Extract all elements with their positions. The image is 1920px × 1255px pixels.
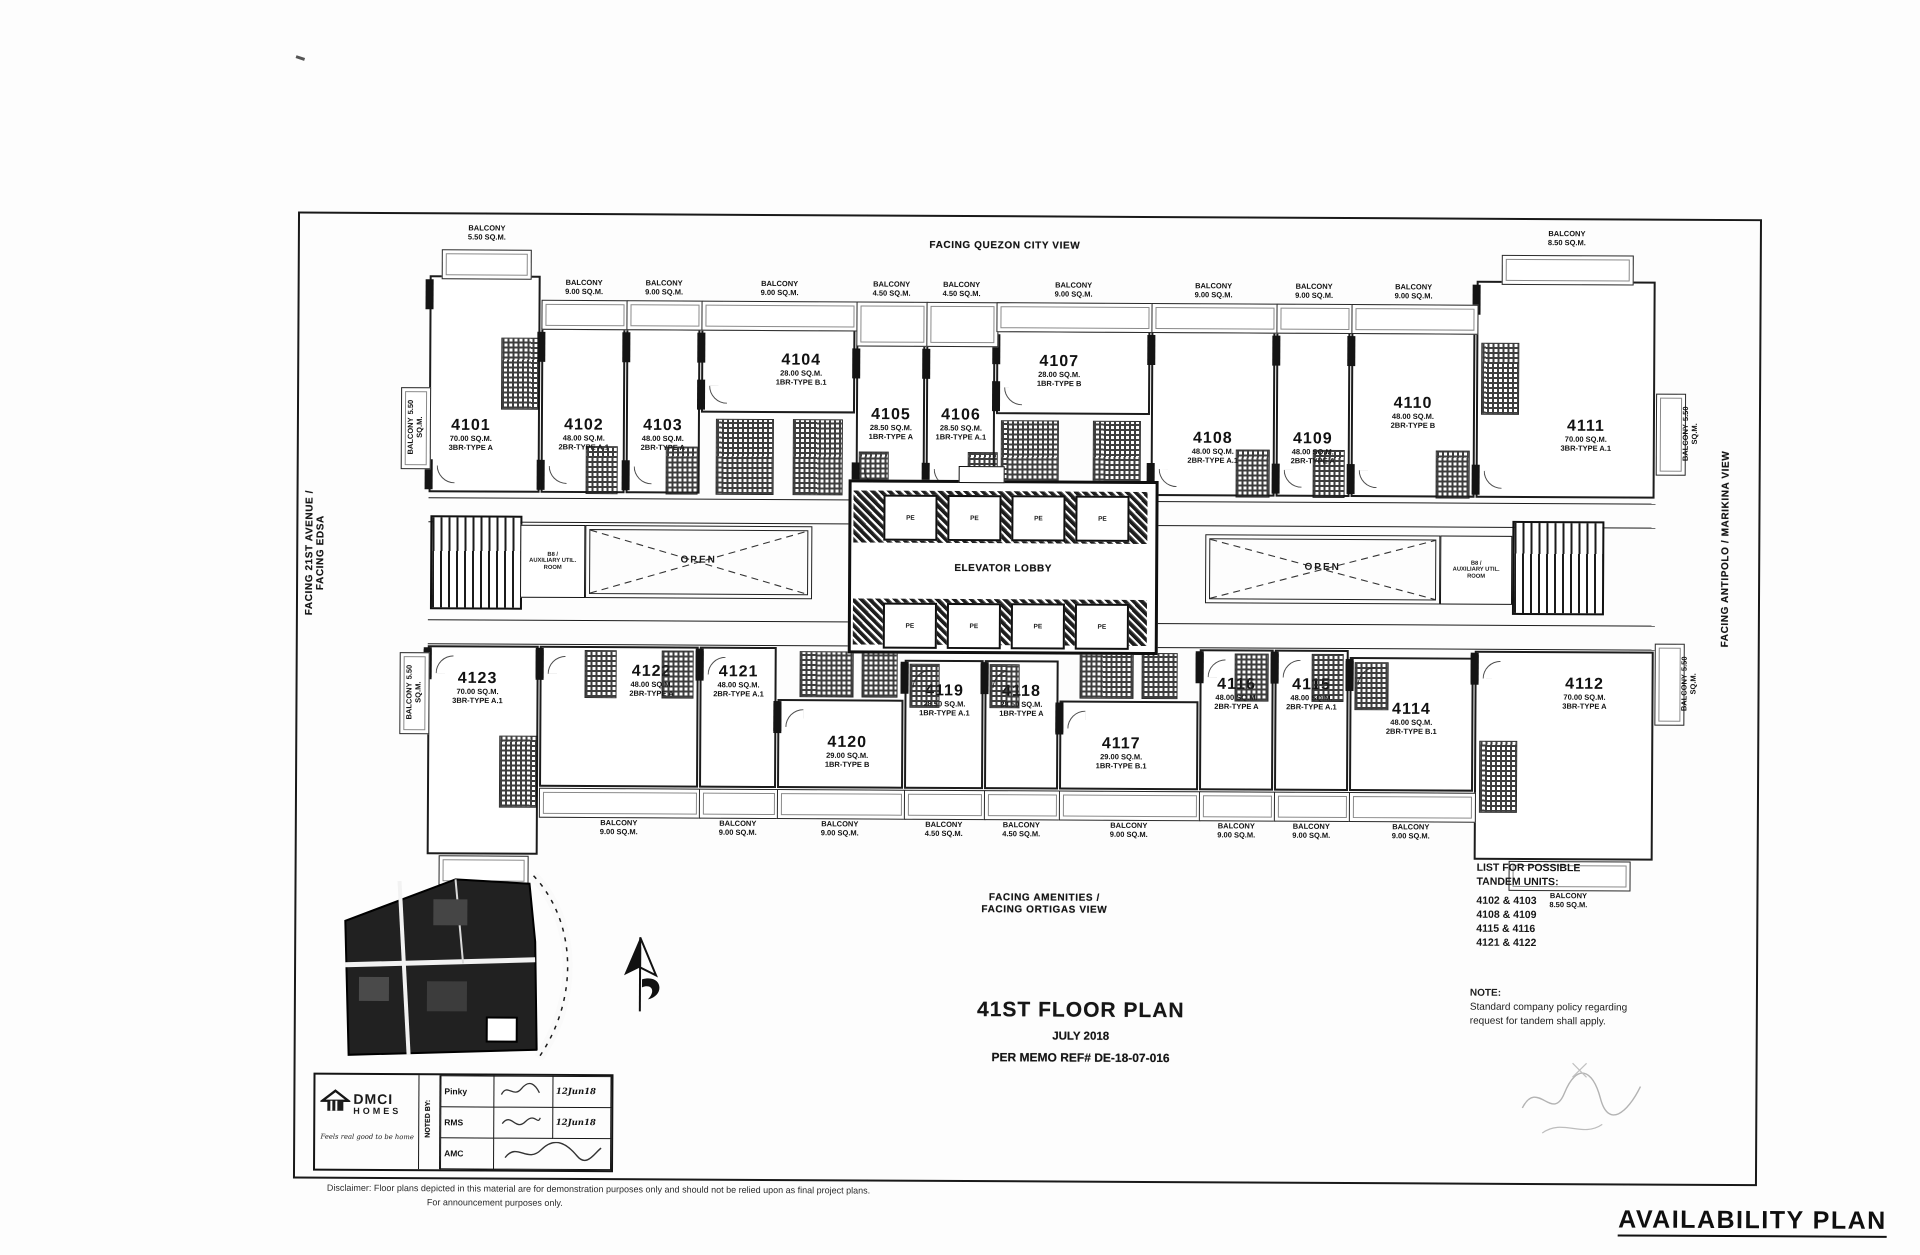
balcony-strip <box>1351 304 1478 335</box>
unit-4110-label: 411048.00 SQ.M.2BR-TYPE B <box>1358 395 1468 431</box>
unit-4120-number: 4120 <box>792 734 902 752</box>
wall-pier <box>992 381 1000 411</box>
wall-pier <box>696 649 704 679</box>
wall-pier <box>1347 336 1355 366</box>
unit-4107-label: 410728.00 SQ.M.1BR-TYPE B <box>1004 353 1114 389</box>
balcony-word: BALCONY <box>1392 822 1429 831</box>
plumbing-core <box>1481 343 1519 415</box>
note-block: NOTE: Standard company policy regarding … <box>1470 987 1680 1030</box>
open-area-left: OPEN <box>585 525 812 599</box>
title-strip: DMCI HOMES Feels real good to be home NO… <box>313 1073 614 1173</box>
balcony-label: BALCONY9.00 SQ.M. <box>1019 280 1129 299</box>
elevator-cab-label: PE <box>906 514 915 521</box>
unit-4110-number: 4110 <box>1358 395 1468 413</box>
balcony-word: BALCONY <box>1296 282 1333 291</box>
plumbing-core <box>1354 662 1388 710</box>
stairs-left <box>430 515 522 609</box>
plumbing-core <box>1436 450 1470 498</box>
tandem-pair: 4115 & 4116 <box>1476 922 1646 937</box>
balcony-word: BALCONY <box>406 417 415 454</box>
tandem-list: LIST FOR POSSIBLE TANDEM UNITS: 4102 & 4… <box>1476 861 1646 951</box>
balcony-label: BALCONY5.50 SQ.M. <box>1681 397 1699 471</box>
balcony-label: BALCONY9.00 SQ.M. <box>1356 822 1466 841</box>
brand-name-1: DMCI <box>353 1091 393 1107</box>
auxiliary-room-right: B8 /AUXILIARY UTIL.ROOM <box>1440 536 1512 605</box>
unit-4107-number: 4107 <box>1004 353 1114 371</box>
balcony-label: BALCONY9.00 SQ.M. <box>1159 281 1269 300</box>
wall-pier <box>1347 464 1355 494</box>
wall-pier <box>697 333 705 363</box>
balcony-word: BALCONY <box>468 223 505 232</box>
balcony-strip <box>1502 255 1634 286</box>
balcony-label: BALCONY4.50 SQ.M. <box>927 280 997 298</box>
unit-4123-label: 412370.00 SQ.M.3BR-TYPE A.1 <box>422 670 532 706</box>
balcony-label: BALCONY5.50 SQ.M. <box>1679 647 1697 721</box>
balcony-strip <box>442 249 532 279</box>
wall-pier <box>922 349 930 379</box>
balcony-label: BALCONY4.50 SQ.M. <box>904 820 984 838</box>
unit-4112-number: 4112 <box>1530 675 1640 693</box>
wall-pier <box>1272 336 1280 366</box>
brand-name-2: HOMES <box>353 1106 401 1116</box>
balcony-label: BALCONY9.00 SQ.M. <box>1274 822 1349 840</box>
noted-name: RMS <box>441 1107 494 1138</box>
key-plan-inset <box>337 869 600 1060</box>
plumbing-core <box>909 664 939 708</box>
balcony-area: 9.00 SQ.M. <box>600 827 638 836</box>
balcony-label: BALCONY4.50 SQ.M. <box>857 279 927 297</box>
balcony-word: BALCONY <box>925 820 962 829</box>
noted-by-strip: NOTED BY: <box>419 1075 440 1169</box>
elevator-cab-bottom-2: PE <box>947 603 1001 649</box>
unit-4114-type: 2BR-TYPE B.1 <box>1356 727 1466 737</box>
unit-4104-label: 410428.00 SQ.M.1BR-TYPE B.1 <box>746 351 856 387</box>
wall-pier <box>901 662 909 692</box>
balcony-word: BALCONY <box>821 819 858 828</box>
elevator-cab-label: PE <box>1097 623 1106 630</box>
facing-label-bottom-1: FACING AMENITIES / <box>939 892 1149 904</box>
unit-4111-label: 411170.00 SQ.M.3BR-TYPE A.1 <box>1531 417 1641 453</box>
plumbing-core <box>1479 741 1517 813</box>
unit-4103-number: 4103 <box>608 417 718 435</box>
balcony-strip <box>1151 303 1278 334</box>
balcony-area: 9.00 SQ.M. <box>1395 291 1433 300</box>
balcony-word: BALCONY <box>1293 822 1330 831</box>
signature-cell <box>494 1107 553 1138</box>
wall-pier <box>1472 465 1480 495</box>
balcony-strip <box>1199 791 1276 821</box>
unit-4117-label: 411729.00 SQ.M.1BR-TYPE B.1 <box>1066 735 1176 771</box>
balcony-word: BALCONY <box>1395 282 1432 291</box>
balcony-area: 9.00 SQ.M. <box>1292 831 1330 840</box>
wall-pier <box>1471 653 1479 683</box>
balcony-label: BALCONY4.50 SQ.M. <box>984 820 1059 838</box>
noted-by-table: Pinky 12Jun18 RMS 12Jun18 AMC <box>440 1075 611 1170</box>
note-line-2: request for tandem shall apply. <box>1470 1015 1680 1030</box>
balcony-area: 4.50 SQ.M. <box>925 829 963 838</box>
balcony-word: BALCONY <box>1110 821 1147 830</box>
elevator-cab-label: PE <box>970 623 979 630</box>
plumbing-core <box>793 419 843 495</box>
elevator-lobby-label: ELEVATOR LOBBY <box>903 563 1103 575</box>
balcony-strip <box>626 300 703 330</box>
unit-4103-label: 410348.00 SQ.M.2BR-TYPE A <box>608 417 718 453</box>
balcony-area: 9.00 SQ.M. <box>719 828 757 837</box>
wall-pier <box>1272 464 1280 494</box>
tandem-pair: 4108 & 4109 <box>1476 908 1646 923</box>
availability-plan-title: AVAILABILITY PLAN <box>1467 1205 1887 1236</box>
wall-pier <box>852 348 860 378</box>
elevator-cab-bottom-1: PE <box>883 603 937 649</box>
balcony-word: BALCONY <box>719 819 756 828</box>
balcony-word: BALCONY <box>1003 820 1040 829</box>
table-row: Pinky 12Jun18 <box>441 1076 611 1108</box>
balcony-label: BALCONY9.00 SQ.M. <box>542 278 627 296</box>
disclaimer-line-2: For announcement purposes only. <box>427 1197 827 1209</box>
plumbing-core <box>1236 449 1270 497</box>
balcony-label: BALCONY9.00 SQ.M. <box>627 278 702 296</box>
signature-cell <box>494 1076 553 1107</box>
balcony-label: BALCONY9.00 SQ.M. <box>725 279 835 298</box>
unit-4101-type: 3BR-TYPE A <box>416 443 526 453</box>
tandem-heading-1: LIST FOR POSSIBLE <box>1477 861 1647 876</box>
balcony-label: BALCONY9.00 SQ.M. <box>785 819 895 838</box>
lobby-top-box <box>959 466 1005 483</box>
plan-date: JULY 2018 <box>931 1030 1231 1044</box>
scan-artifact <box>296 55 305 61</box>
wall-pier <box>622 332 630 362</box>
unit-4121-type: 2BR-TYPE A.1 <box>683 689 793 699</box>
balcony-label: BALCONY9.00 SQ.M. <box>699 819 777 837</box>
noted-name: Pinky <box>441 1076 494 1107</box>
unit-4120-type: 1BR-TYPE B <box>792 760 902 770</box>
tandem-pair: 4121 & 4122 <box>1476 936 1646 951</box>
noted-date: 12Jun18 <box>552 1107 611 1138</box>
balcony-word: BALCONY <box>1218 821 1255 830</box>
brand-tagline: Feels real good to be home <box>319 1133 415 1142</box>
tandem-pair: 4102 & 4103 <box>1476 894 1646 909</box>
balcony-label: BALCONY9.00 SQ.M. <box>1277 282 1352 300</box>
elevator-cab-label: PE <box>1034 623 1043 630</box>
plumbing-core <box>861 651 897 697</box>
plumbing-core <box>1313 450 1345 498</box>
wall-pier <box>1055 703 1063 733</box>
balcony-area: 9.00 SQ.M. <box>1217 830 1255 839</box>
unit-4117-number: 4117 <box>1066 735 1176 753</box>
brand-logo-cell: DMCI HOMES Feels real good to be home <box>315 1075 420 1170</box>
unit-4106-type: 1BR-TYPE A.1 <box>906 432 1016 442</box>
plan-memo: PER MEMO REF# DE-18-07-016 <box>931 1050 1231 1066</box>
elevator-cab-bottom-3: PE <box>1011 603 1065 649</box>
open-area-right: OPEN <box>1205 534 1440 604</box>
facing-label-right: FACING ANTIPOLO / MARIKINA VIEW <box>1720 434 1735 664</box>
facing-label-top: FACING QUEZON CITY VIEW <box>880 240 1130 252</box>
plumbing-core <box>1079 653 1133 699</box>
table-row: AMC <box>441 1138 611 1170</box>
balcony-word: BALCONY <box>1195 281 1232 290</box>
tandem-heading-2: TANDEM UNITS: <box>1476 875 1646 890</box>
plumbing-core <box>989 664 1019 708</box>
unit-4120-label: 412029.00 SQ.M.1BR-TYPE B <box>792 734 902 770</box>
balcony-word: BALCONY <box>1055 280 1092 289</box>
wall-pier <box>981 662 989 692</box>
scanned-floor-plan-page: FACING QUEZON CITY VIEW FACING AMENITIES… <box>0 0 1920 1255</box>
elevator-cab-bottom-4: PE <box>1075 604 1129 650</box>
unit-4112-label: 411270.00 SQ.M.3BR-TYPE A <box>1529 675 1639 711</box>
wall-pier <box>1196 651 1204 681</box>
unit-4104-number: 4104 <box>746 351 856 369</box>
balcony-area: 9.00 SQ.M. <box>1295 291 1333 300</box>
plumbing-core <box>586 446 618 494</box>
dmci-house-icon <box>320 1089 350 1113</box>
elevator-cab-label: PE <box>970 515 979 522</box>
elevator-cab-top-2: PE <box>947 495 1001 541</box>
wall-pier <box>697 380 705 410</box>
balcony-area: 9.00 SQ.M. <box>1055 289 1093 298</box>
balcony-area: 5.50 SQ.M. <box>468 232 506 241</box>
facing-label-left: FACING 21ST AVENUE /FACING EDSA <box>304 468 331 638</box>
plumbing-core <box>499 736 537 808</box>
stairs-right <box>1512 521 1604 615</box>
elevator-cab-label: PE <box>906 622 915 629</box>
pencil-scribble <box>1502 1038 1663 1149</box>
plumbing-core <box>799 651 853 697</box>
noted-by-label: NOTED BY: <box>425 1084 432 1154</box>
balcony-area: 8.50 SQ.M. <box>1548 238 1586 247</box>
drawing-sheet: FACING QUEZON CITY VIEW FACING AMENITIES… <box>0 0 1920 1255</box>
open-label-right: OPEN <box>1206 561 1439 573</box>
unit-4111-number: 4111 <box>1531 417 1641 435</box>
balcony-strip <box>996 302 1153 333</box>
balcony-strip <box>701 301 858 332</box>
balcony-word: BALCONY <box>873 280 910 289</box>
plumbing-core <box>1234 653 1268 701</box>
balcony-word: BALCONY <box>761 279 798 288</box>
balcony-area: 9.00 SQ.M. <box>821 828 859 837</box>
unit-4123-type: 3BR-TYPE A.1 <box>422 696 532 706</box>
balcony-strip <box>856 301 928 346</box>
unit-4101-number: 4101 <box>416 417 526 435</box>
unit-4103-type: 2BR-TYPE A <box>608 443 718 453</box>
noted-date: 12Jun18 <box>552 1076 611 1107</box>
elevator-cab-top-1: PE <box>883 495 937 541</box>
balcony-word: BALCONY <box>600 818 637 827</box>
balcony-word: BALCONY <box>646 278 683 287</box>
balcony-area: 9.00 SQ.M. <box>565 287 603 296</box>
balcony-area: 9.00 SQ.M. <box>1392 831 1430 840</box>
balcony-strip <box>1274 792 1351 822</box>
wall-pier <box>426 279 434 309</box>
balcony-word: BALCONY <box>943 280 980 289</box>
balcony-area: 9.00 SQ.M. <box>1195 290 1233 299</box>
balcony-label: BALCONY5.50 SQ.M. <box>406 390 424 464</box>
unit-4110-type: 2BR-TYPE B <box>1358 421 1468 431</box>
plan-title: 41ST FLOOR PLAN <box>931 998 1231 1024</box>
plumbing-core <box>501 338 539 410</box>
balcony-area: 4.50 SQ.M. <box>943 289 981 298</box>
balcony-area: 4.50 SQ.M. <box>1002 829 1040 838</box>
plumbing-core <box>584 650 616 698</box>
balcony-area: 9.00 SQ.M. <box>645 287 683 296</box>
balcony-strip <box>541 300 628 330</box>
unit-4108-number: 4108 <box>1158 430 1268 448</box>
plumbing-core <box>1311 654 1343 702</box>
balcony-label: BALCONY9.00 SQ.M. <box>1199 821 1274 839</box>
balcony-strip <box>1349 792 1476 823</box>
balcony-label: BALCONY5.50 SQ.M. <box>404 655 422 729</box>
balcony-area: 4.50 SQ.M. <box>873 289 911 298</box>
facing-label-bottom-2: FACING ORTIGAS VIEW <box>939 904 1149 916</box>
unit-4104-type: 1BR-TYPE B.1 <box>746 377 856 387</box>
balcony-label: BALCONY9.00 SQ.M. <box>564 818 674 837</box>
wall-pier <box>1346 659 1354 689</box>
elevator-cab-top-4: PE <box>1075 496 1129 542</box>
plumbing-core <box>1141 653 1177 699</box>
table-row: RMS 12Jun18 <box>441 1107 611 1139</box>
wall-pier <box>1147 335 1155 365</box>
balcony-strip <box>904 790 986 820</box>
noted-name: AMC <box>441 1138 494 1169</box>
balcony-strip <box>699 789 779 819</box>
balcony-area: 9.00 SQ.M. <box>761 288 799 297</box>
balcony-strip <box>926 302 998 347</box>
unit-4112-type: 3BR-TYPE A <box>1529 701 1639 711</box>
balcony-strip <box>777 789 906 820</box>
balcony-strip <box>539 788 701 819</box>
elevator-cab-label: PE <box>1034 515 1043 522</box>
balcony-word: BALCONY <box>1679 674 1688 711</box>
balcony-word: BALCONY <box>1548 229 1585 238</box>
wall-pier <box>1271 652 1279 682</box>
elevator-cab-top-3: PE <box>1011 495 1065 541</box>
elevator-cab-label: PE <box>1098 515 1107 522</box>
open-label-left: OPEN <box>586 554 811 566</box>
note-label: NOTE: <box>1470 987 1680 1002</box>
unit-4101-label: 410170.00 SQ.M.3BR-TYPE A <box>416 417 526 453</box>
wall-pier <box>536 648 544 678</box>
plumbing-core <box>666 446 698 494</box>
plumbing-core <box>716 419 774 495</box>
unit-4111-type: 3BR-TYPE A.1 <box>1531 443 1641 453</box>
balcony-area: 9.00 SQ.M. <box>1110 830 1148 839</box>
balcony-label: BALCONY5.50 SQ.M. <box>447 223 527 241</box>
balcony-strip <box>1276 304 1353 334</box>
disclaimer-line-1: Disclaimer: Floor plans depicted in this… <box>327 1183 1087 1197</box>
elevator-lobby-block: ELEVATOR LOBBY PEPEPEPEPEPEPEPE <box>848 479 1159 655</box>
balcony-label: BALCONY8.50 SQ.M. <box>1512 229 1622 248</box>
plumbing-core <box>661 650 693 698</box>
signature-cell <box>494 1138 611 1170</box>
balcony-word: BALCONY <box>566 278 603 287</box>
balcony-label: BALCONY9.00 SQ.M. <box>1359 282 1469 301</box>
north-arrow-icon <box>610 933 670 1019</box>
wall-pier <box>537 460 545 490</box>
balcony-strip <box>1059 791 1201 822</box>
unit-4117-type: 1BR-TYPE B.1 <box>1066 761 1176 771</box>
wall-pier <box>622 460 630 490</box>
balcony-word: BALCONY <box>1681 424 1690 461</box>
wall-pier <box>773 701 781 731</box>
note-line-1: Standard company policy regarding <box>1470 1001 1680 1016</box>
auxiliary-room-left: B8 /AUXILIARY UTIL.ROOM <box>520 525 585 598</box>
balcony-word: BALCONY <box>404 682 413 719</box>
balcony-label: BALCONY9.00 SQ.M. <box>1074 821 1184 840</box>
balcony-strip <box>984 790 1061 820</box>
